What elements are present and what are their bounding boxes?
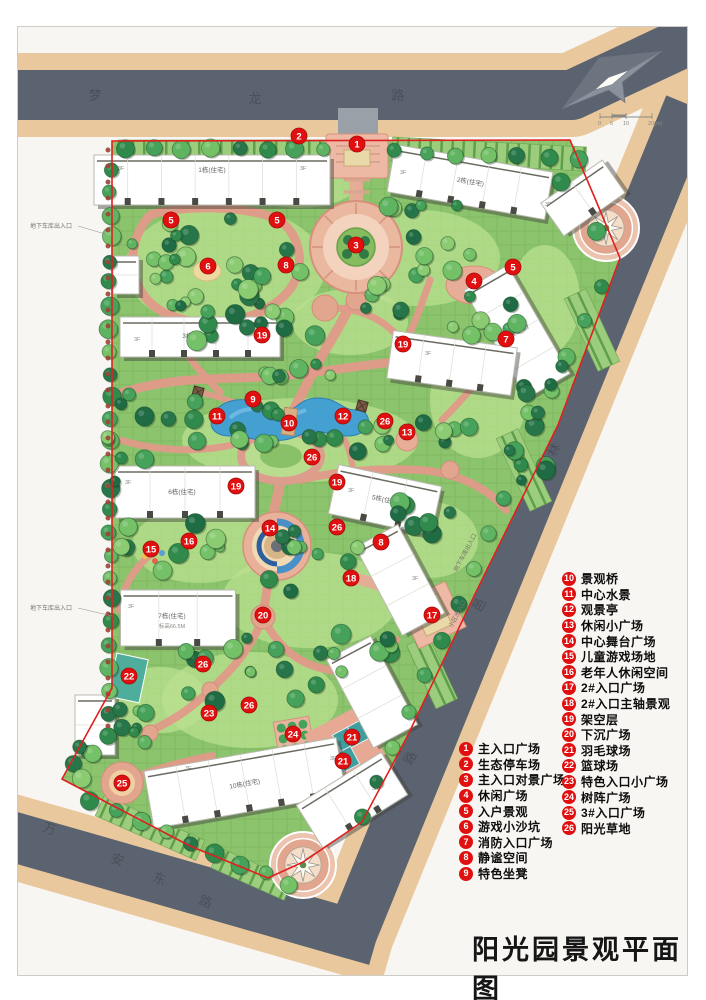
floor-tag: 3F xyxy=(545,202,552,208)
scale-label: 20(m) xyxy=(648,121,663,127)
legend-item-9: 9特色坐凳 xyxy=(459,866,566,882)
plan-marker-number: 26 xyxy=(380,416,391,427)
plan-marker-2: 2 xyxy=(291,128,307,144)
plan-marker-number: 26 xyxy=(307,452,318,463)
plan-marker-26: 26 xyxy=(377,413,393,429)
legend-item-7: 7消防入口广场 xyxy=(459,835,566,851)
plan-marker-number: 5 xyxy=(274,215,280,226)
plan-marker-26: 26 xyxy=(195,656,211,672)
floor-tag: 3F xyxy=(425,351,432,357)
plan-marker-number: 20 xyxy=(258,610,269,621)
legend-badge: 4 xyxy=(459,789,473,803)
legend-label: 特色入口小广场 xyxy=(581,773,669,790)
plan-marker-4: 4 xyxy=(466,273,482,289)
plan-marker-26: 26 xyxy=(241,697,257,713)
legend-badge: 26 xyxy=(562,821,576,835)
plan-marker-23: 23 xyxy=(201,705,217,721)
legend-badge: 13 xyxy=(562,619,576,633)
plan-marker-10: 10 xyxy=(281,415,297,431)
pavilion-icon xyxy=(356,400,368,412)
floor-tag: 3F xyxy=(348,488,355,494)
plan-marker-number: 14 xyxy=(265,523,276,534)
plan-marker-18: 18 xyxy=(343,570,359,586)
plan-marker-number: 26 xyxy=(332,522,343,533)
legend-item-22: 22篮球场 xyxy=(562,758,670,774)
plan-marker-number: 8 xyxy=(283,260,288,271)
legend-badge: 17 xyxy=(562,681,576,695)
plan-marker-number: 26 xyxy=(198,659,209,670)
plan-marker-number: 8 xyxy=(378,537,383,548)
legend-item-13: 13休闲小广场 xyxy=(562,618,670,634)
legend-label: 主入口对景广场 xyxy=(478,771,566,788)
plan-marker-26: 26 xyxy=(329,519,345,535)
road-char: 路 xyxy=(391,88,404,103)
legend-badge: 14 xyxy=(562,634,576,648)
plan-marker-14: 14 xyxy=(262,520,278,536)
legend-badge: 16 xyxy=(562,665,576,679)
plan-marker-number: 6 xyxy=(205,261,210,272)
plan-marker-11: 11 xyxy=(209,408,225,424)
path-node xyxy=(441,461,459,479)
legend-item-15: 15儿童游戏场地 xyxy=(562,649,670,665)
plan-marker-number: 19 xyxy=(231,481,242,492)
plan-marker-number: 22 xyxy=(124,671,135,682)
legend-badge: 18 xyxy=(562,697,576,711)
legend-label: 消防入口广场 xyxy=(478,834,553,851)
plan-title: 阳光园景观平面图 xyxy=(472,928,706,1000)
legend-badge: 12 xyxy=(562,603,576,617)
plan-marker-21: 21 xyxy=(344,729,360,745)
legend-label: 特色坐凳 xyxy=(478,865,528,882)
legend-item-16: 16老年人休闲空间 xyxy=(562,665,670,681)
road-char: 梦 xyxy=(88,88,101,103)
legend-label: 静谧空间 xyxy=(478,849,528,866)
plan-marker-19: 19 xyxy=(254,327,270,343)
plan-marker-number: 15 xyxy=(146,544,157,555)
floor-tag: 3F xyxy=(125,480,132,486)
plan-marker-number: 21 xyxy=(347,732,358,743)
plan-marker-number: 23 xyxy=(204,708,215,719)
legend-item-23: 23特色入口小广场 xyxy=(562,774,670,790)
plan-marker-number: 24 xyxy=(288,729,299,740)
legend-item-20: 20下沉广场 xyxy=(562,727,670,743)
legend-badge: 5 xyxy=(459,804,473,818)
plan-marker-number: 19 xyxy=(332,477,343,488)
plan-marker-number: 18 xyxy=(346,573,357,584)
legend-item-26: 26阳光草地 xyxy=(562,821,670,837)
plan-marker-12: 12 xyxy=(335,408,351,424)
legend-item-12: 12观景亭 xyxy=(562,602,670,618)
plan-marker-13: 13 xyxy=(399,424,415,440)
plan-marker-1: 1 xyxy=(349,136,365,152)
legend-label: 中心舞台广场 xyxy=(581,633,656,650)
plan-marker-19: 19 xyxy=(395,336,411,352)
plan-marker-number: 9 xyxy=(250,394,255,405)
plan-marker-19: 19 xyxy=(329,474,345,490)
legend-label: 阳光草地 xyxy=(581,820,631,837)
plan-marker-8: 8 xyxy=(373,534,389,550)
plan-marker-number: 5 xyxy=(510,262,516,273)
legend-item-17: 172#入口广场 xyxy=(562,680,670,696)
plan-marker-17: 17 xyxy=(424,607,440,623)
legend-label: 3#入口广场 xyxy=(581,804,645,821)
legend-label: 入户景观 xyxy=(478,803,528,820)
legend-badge: 23 xyxy=(562,775,576,789)
scale-label: 5 xyxy=(610,121,613,127)
plan-marker-number: 4 xyxy=(471,276,477,287)
plan-marker-number: 13 xyxy=(402,427,413,438)
legend-item-18: 182#入口主轴景观 xyxy=(562,696,670,712)
floor-tag: 3F xyxy=(185,766,192,772)
legend-badge: 24 xyxy=(562,790,576,804)
plan-marker-number: 11 xyxy=(212,411,223,422)
building-name-label: 7栋(住宅) xyxy=(158,611,185,620)
legend-label: 主入口广场 xyxy=(478,740,541,757)
plan-marker-25: 25 xyxy=(114,775,130,791)
plan-marker-8: 8 xyxy=(278,257,294,273)
legend-item-3: 3主入口对景广场 xyxy=(459,772,566,788)
legend-badge: 6 xyxy=(459,820,473,834)
plan-marker-number: 3 xyxy=(353,240,358,251)
legend-item-2: 2生态停车场 xyxy=(459,757,566,773)
legend-item-8: 8静谧空间 xyxy=(459,850,566,866)
legend-item-11: 11中心水景 xyxy=(562,587,670,603)
legend-label: 儿童游戏场地 xyxy=(581,648,656,665)
plan-marker-number: 12 xyxy=(338,411,349,422)
legend-badge: 11 xyxy=(562,587,576,601)
plan-marker-number: 1 xyxy=(354,139,360,150)
plan-marker-21: 21 xyxy=(335,753,351,769)
elevation-tag: 标高66.5M xyxy=(159,622,186,630)
legend-item-24: 24树阵广场 xyxy=(562,789,670,805)
plan-marker-number: 17 xyxy=(427,610,438,621)
plan-marker-number: 19 xyxy=(398,339,409,350)
legend-badge: 19 xyxy=(562,712,576,726)
legend-label: 下沉广场 xyxy=(581,726,631,743)
floor-tag: 3F xyxy=(412,576,419,582)
legend-label: 2#入口主轴景观 xyxy=(581,695,670,712)
legend-badge: 1 xyxy=(459,742,473,756)
scale-label: 10 xyxy=(623,121,629,127)
legend-badge: 10 xyxy=(562,572,576,586)
plan-marker-number: 26 xyxy=(244,700,255,711)
plan-marker-7: 7 xyxy=(498,331,514,347)
legend-label: 休闲小广场 xyxy=(581,617,644,634)
plan-marker-19: 19 xyxy=(228,478,244,494)
plan-marker-9: 9 xyxy=(245,391,261,407)
legend-label: 休闲广场 xyxy=(478,787,528,804)
plan-marker-20: 20 xyxy=(255,607,271,623)
plan-marker-24: 24 xyxy=(285,726,301,742)
plan-marker-5: 5 xyxy=(269,212,285,228)
plan-marker-22: 22 xyxy=(121,668,137,684)
floor-tag: 3F xyxy=(400,170,407,176)
legend-label: 架空层 xyxy=(581,711,619,728)
floor-tag: 3F xyxy=(300,166,307,172)
plan-marker-6: 6 xyxy=(200,258,216,274)
legend-badge: 22 xyxy=(562,759,576,773)
annotation-label: 地下车库出入口 xyxy=(30,604,72,612)
legend-badge: 8 xyxy=(459,851,473,865)
legend-badge: 7 xyxy=(459,835,473,849)
legend-item-10: 10景观桥 xyxy=(562,571,670,587)
legend-label: 篮球场 xyxy=(581,757,619,774)
floor-tag: 3F xyxy=(128,604,135,610)
site-plan-canvas: 梦龙路林邑路万安东路1栋(住宅)2栋(住宅)3栋(住宅)9栋(住宅)6栋(住宅)… xyxy=(0,0,706,1000)
legend-group-1: 1主入口广场2生态停车场3主入口对景广场4休闲广场5入户景观6游戏小沙坑7消防入… xyxy=(459,741,566,881)
legend-badge: 9 xyxy=(459,867,473,881)
building-name-label: 6栋(住宅) xyxy=(168,487,195,496)
legend-item-19: 19架空层 xyxy=(562,711,670,727)
play-equipment xyxy=(159,550,165,556)
legend-badge: 15 xyxy=(562,650,576,664)
floor-tag: 3F xyxy=(134,337,141,343)
plan-marker-number: 5 xyxy=(168,215,174,226)
path-node xyxy=(312,295,338,321)
plan-marker-15: 15 xyxy=(143,541,159,557)
legend-badge: 25 xyxy=(562,806,576,820)
building-name-label: 1栋(住宅) xyxy=(198,165,225,174)
legend-item-4: 4休闲广场 xyxy=(459,788,566,804)
road-char: 龙 xyxy=(248,91,261,106)
legend-badge: 2 xyxy=(459,757,473,771)
legend-label: 2#入口广场 xyxy=(581,679,645,696)
plan-marker-number: 7 xyxy=(503,334,508,345)
legend-item-1: 1主入口广场 xyxy=(459,741,566,757)
plan-marker-number: 10 xyxy=(284,418,295,429)
plan-marker-number: 19 xyxy=(257,330,268,341)
legend-label: 观景亭 xyxy=(581,601,619,618)
annotation-label: 地下车库出入口 xyxy=(30,222,72,230)
legend-label: 羽毛球场 xyxy=(581,742,631,759)
legend-label: 景观桥 xyxy=(581,570,619,587)
legend-group-2: 10景观桥11中心水景12观景亭13休闲小广场14中心舞台广场15儿童游戏场地1… xyxy=(562,571,670,836)
legend-item-6: 6游戏小沙坑 xyxy=(459,819,566,835)
legend-item-14: 14中心舞台广场 xyxy=(562,633,670,649)
building-9 xyxy=(121,590,240,650)
legend-item-25: 253#入口广场 xyxy=(562,805,670,821)
plan-marker-number: 21 xyxy=(338,756,349,767)
legend-label: 树阵广场 xyxy=(581,789,631,806)
plan-marker-3: 3 xyxy=(348,237,364,253)
legend-label: 中心水景 xyxy=(581,586,631,603)
legend-item-21: 21羽毛球场 xyxy=(562,743,670,759)
plan-marker-number: 25 xyxy=(117,778,128,789)
plan-marker-5: 5 xyxy=(505,259,521,275)
plan-marker-26: 26 xyxy=(304,449,320,465)
plan-sheet: { "title": "阳光园景观平面图", "roads": [ {"id":… xyxy=(0,0,706,1000)
building-1 xyxy=(94,155,334,209)
legend-badge: 3 xyxy=(459,773,473,787)
legend-badge: 21 xyxy=(562,743,576,757)
plan-marker-5: 5 xyxy=(163,212,179,228)
legend-label: 游戏小沙坑 xyxy=(478,818,541,835)
plan-marker-number: 2 xyxy=(296,131,301,142)
legend-label: 老年人休闲空间 xyxy=(581,664,669,681)
legend-label: 生态停车场 xyxy=(478,756,541,773)
legend-item-5: 5入户景观 xyxy=(459,803,566,819)
scale-label: 0 xyxy=(598,121,601,127)
plan-marker-16: 16 xyxy=(181,533,197,549)
legend-badge: 20 xyxy=(562,728,576,742)
plan-marker-number: 16 xyxy=(184,536,195,547)
